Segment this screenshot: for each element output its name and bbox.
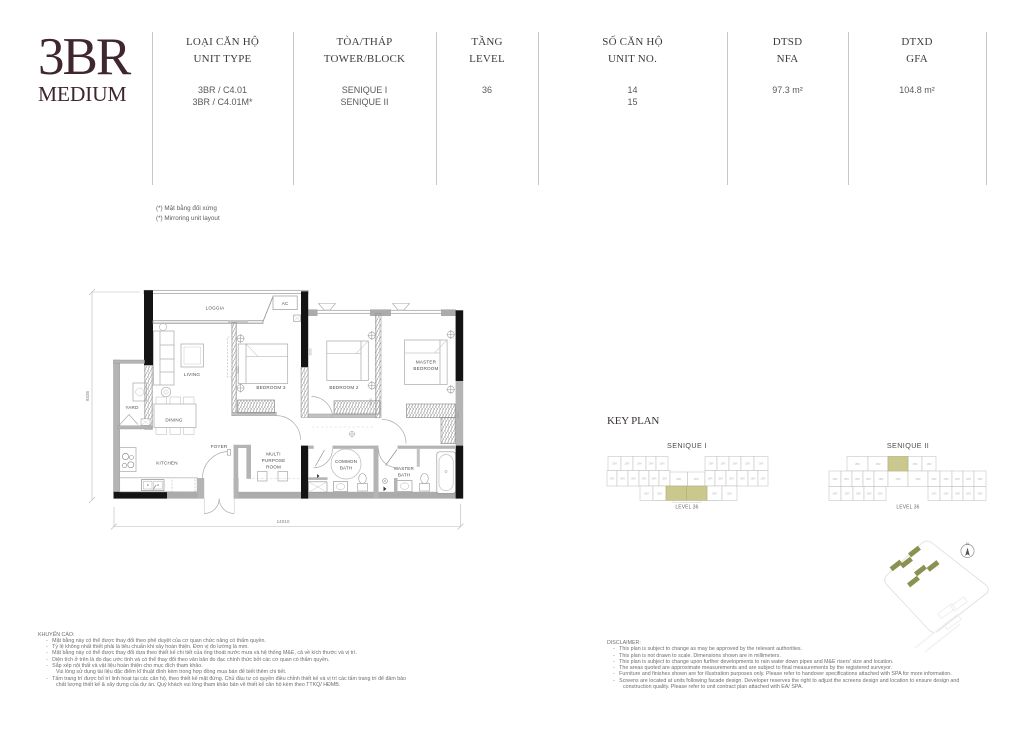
svg-text:BEDROOM: BEDROOM [413, 366, 438, 371]
svg-text:2BR: 2BR [844, 477, 849, 481]
svg-text:2BR: 2BR [866, 477, 871, 481]
svg-text:LEVEL 36: LEVEL 36 [675, 505, 698, 511]
svg-text:2BR: 2BR [659, 462, 664, 466]
svg-text:2BR: 2BR [955, 477, 960, 481]
svg-text:LOGGIA: LOGGIA [206, 306, 226, 311]
svg-text:BEDROOM 2: BEDROOM 2 [329, 385, 359, 390]
svg-text:BEDROOM 3: BEDROOM 3 [256, 385, 286, 390]
svg-text:FOYER: FOYER [211, 444, 228, 449]
svg-text:2BR: 2BR [832, 477, 837, 481]
svg-text:2BR: 2BR [612, 462, 617, 466]
svg-text:2BR: 2BR [732, 462, 737, 466]
svg-text:2BR: 2BR [760, 476, 765, 480]
svg-text:2BR: 2BR [740, 476, 745, 480]
svg-text:2BR: 2BR [676, 477, 681, 481]
svg-text:2BR: 2BR [878, 477, 883, 481]
svg-text:2BR: 2BR [844, 492, 849, 496]
svg-text:DINING: DINING [165, 418, 183, 423]
svg-text:2BR: 2BR [895, 477, 900, 481]
svg-text:3200: 3200 [236, 366, 240, 373]
svg-text:2BR: 2BR [712, 491, 717, 495]
svg-text:14010: 14010 [277, 519, 290, 524]
svg-text:2BR: 2BR [637, 462, 642, 466]
svg-text:2BR: 2BR [694, 477, 699, 481]
svg-text:3000: 3000 [309, 348, 313, 355]
svg-text:2BR: 2BR [729, 476, 734, 480]
svg-text:2BR: 2BR [955, 492, 960, 496]
svg-text:MULTI: MULTI [266, 452, 280, 457]
svg-text:LEVEL 36: LEVEL 36 [896, 505, 919, 511]
svg-text:COMMON: COMMON [335, 459, 357, 464]
svg-text:2BR: 2BR [855, 477, 860, 481]
svg-text:2BR: 2BR [662, 476, 667, 480]
svg-text:9335: 9335 [85, 390, 90, 401]
svg-text:ROOM: ROOM [266, 465, 281, 470]
svg-text:N: N [966, 541, 969, 546]
svg-text:AC: AC [282, 301, 289, 306]
svg-text:2BR: 2BR [866, 492, 871, 496]
svg-text:MASTER: MASTER [394, 466, 414, 471]
svg-text:2BR: 2BR [745, 462, 750, 466]
svg-text:MASTER: MASTER [416, 360, 437, 365]
svg-text:2BR: 2BR [931, 492, 936, 496]
svg-text:2BR: 2BR [875, 462, 880, 466]
svg-text:2BR: 2BR [943, 477, 948, 481]
svg-text:2BR: 2BR [915, 477, 920, 481]
svg-text:2BR: 2BR [718, 476, 723, 480]
svg-text:2BR: 2BR [720, 462, 725, 466]
svg-text:2BR: 2BR [856, 492, 861, 496]
svg-text:2BR: 2BR [758, 462, 763, 466]
svg-text:2BR: 2BR [631, 476, 636, 480]
svg-text:2BR: 2BR [966, 492, 971, 496]
svg-text:2BR: 2BR [931, 477, 936, 481]
svg-text:2BR: 2BR [895, 462, 900, 466]
svg-text:2BR: 2BR [707, 476, 712, 480]
svg-text:2BR: 2BR [977, 492, 982, 496]
svg-text:2BR: 2BR [708, 462, 713, 466]
svg-text:2BR: 2BR [750, 476, 755, 480]
svg-text:KITCHEN: KITCHEN [156, 461, 178, 466]
svg-text:2BR: 2BR [651, 476, 656, 480]
svg-text:2BR: 2BR [641, 476, 646, 480]
svg-text:2BR: 2BR [727, 491, 732, 495]
svg-text:2BR: 2BR [648, 462, 653, 466]
svg-text:2BR: 2BR [966, 477, 971, 481]
svg-text:2000: 2000 [369, 398, 373, 405]
svg-text:PURPOSE: PURPOSE [262, 458, 286, 463]
svg-text:2BR: 2BR [620, 476, 625, 480]
svg-text:2BR: 2BR [943, 492, 948, 496]
svg-text:YARD: YARD [125, 405, 139, 410]
svg-text:2BR: 2BR [657, 491, 662, 495]
svg-text:2BR: 2BR [912, 462, 917, 466]
svg-text:BATH: BATH [340, 466, 352, 471]
svg-text:2BR: 2BR [832, 492, 837, 496]
svg-text:1800: 1800 [456, 411, 460, 418]
svg-text:2BR: 2BR [855, 462, 860, 466]
svg-text:BATH: BATH [398, 473, 410, 478]
svg-text:2BR: 2BR [926, 462, 931, 466]
svg-text:2BR: 2BR [624, 462, 629, 466]
svg-text:2BR: 2BR [644, 491, 649, 495]
svg-text:SENIQUE II: SENIQUE II [887, 441, 929, 450]
svg-text:2BR: 2BR [609, 476, 614, 480]
svg-text:SENIQUE I: SENIQUE I [667, 441, 707, 450]
svg-text:LIVING: LIVING [184, 372, 200, 377]
svg-text:2BR: 2BR [877, 492, 882, 496]
svg-text:2BR: 2BR [977, 477, 982, 481]
